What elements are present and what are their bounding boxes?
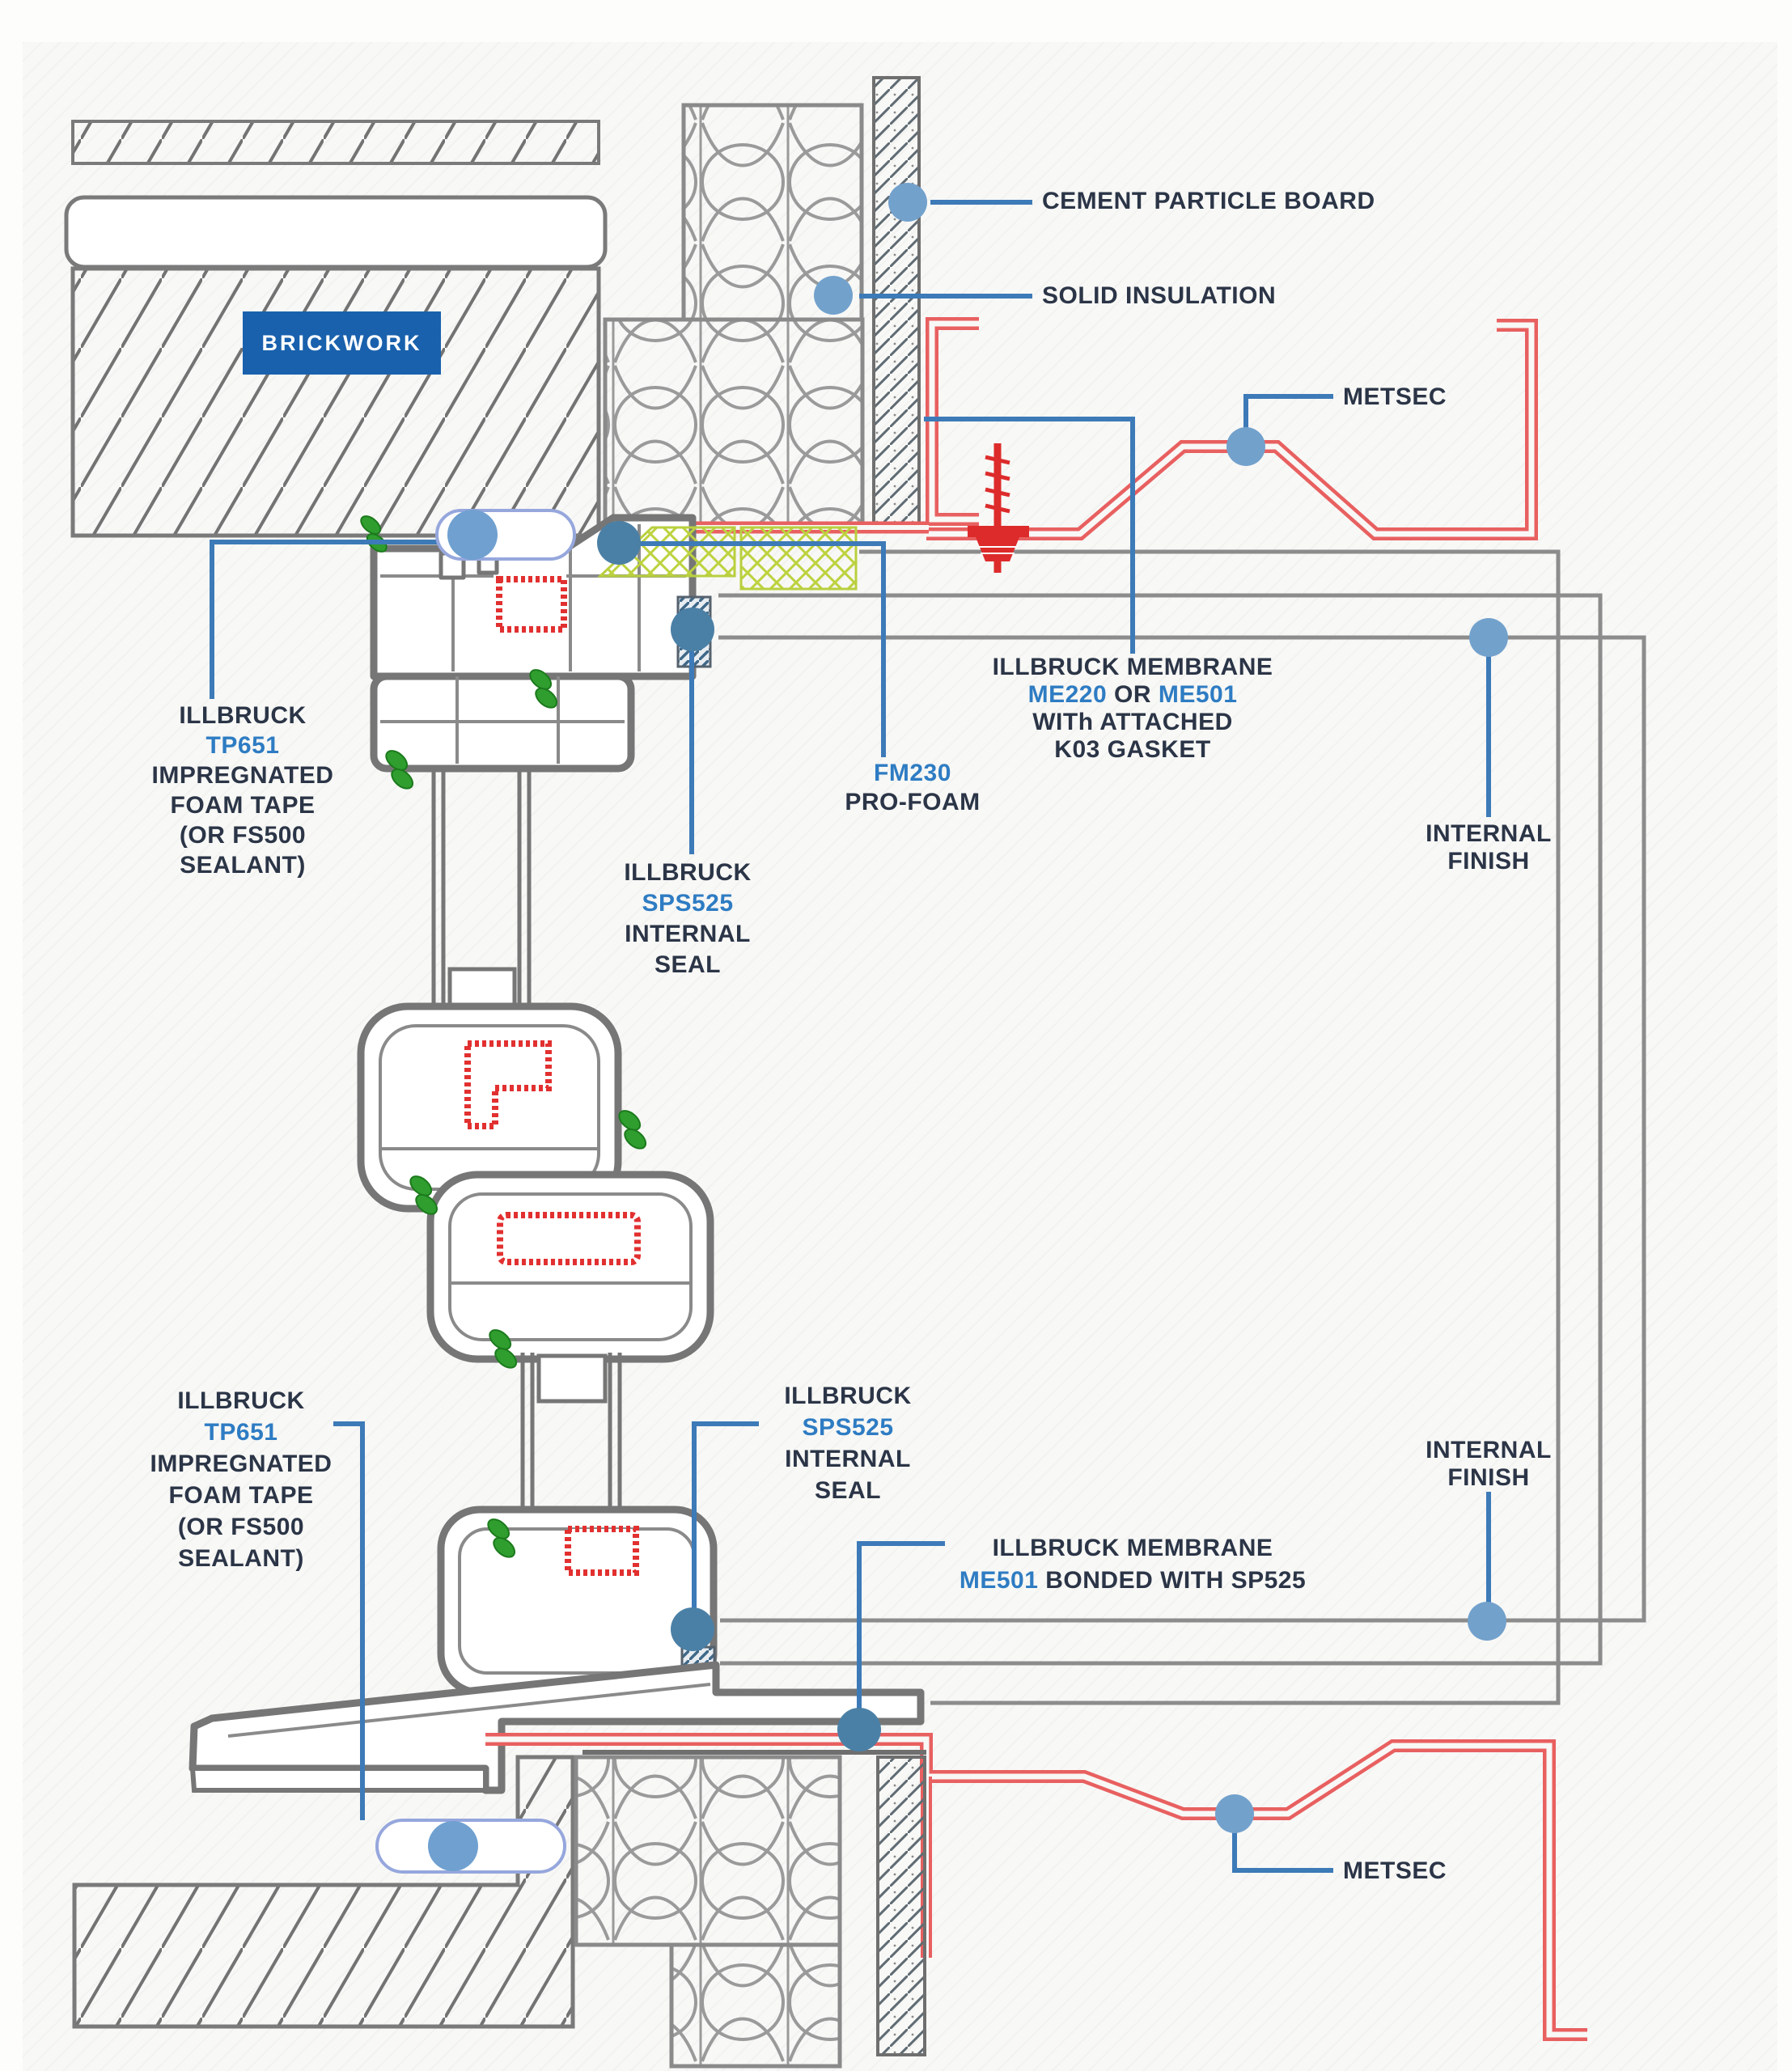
sps525-bottom-l4: SEAL xyxy=(784,1475,911,1506)
metsec-top-text: METSEC xyxy=(1343,383,1447,410)
me501-code-top: ME501 xyxy=(1159,681,1238,708)
tp651-top-l3: IMPREGNATED xyxy=(152,760,334,790)
membrane-bottom-rest: BONDED WITH SP525 xyxy=(1038,1567,1306,1594)
solid-insulation-quilt-top xyxy=(605,105,862,528)
steel-reinforcement-head xyxy=(499,579,564,629)
label-membrane-bottom: ILLBRUCK MEMBRANE ME501 BONDED WITH SP52… xyxy=(960,1532,1306,1597)
brickwork-badge: BRICKWORK xyxy=(243,311,441,375)
label-metsec-bottom: METSEC xyxy=(1343,1856,1447,1887)
cement-particle-board-text: CEMENT PARTICLE BOARD xyxy=(1042,188,1375,214)
cement-particle-board-bottom xyxy=(878,1757,925,2055)
me220-code: ME220 xyxy=(1028,681,1108,708)
tp651-top-l5: (OR FS500 xyxy=(152,820,334,850)
label-cement-particle-board: CEMENT PARTICLE BOARD xyxy=(1042,186,1375,217)
membrane-bottom-line1: ILLBRUCK MEMBRANE xyxy=(960,1532,1306,1565)
metsec-hat-profile-top xyxy=(926,325,1531,534)
detail-drawing-svg xyxy=(0,0,1792,2071)
metsec-bottom-text: METSEC xyxy=(1343,1857,1447,1884)
steel-reinforcement-transom-lower xyxy=(500,1215,638,1262)
tp651-top-l2: TP651 xyxy=(152,731,334,760)
tp651-bottom-l3: IMPREGNATED xyxy=(150,1448,333,1480)
me501-code-bottom: ME501 xyxy=(960,1567,1039,1594)
fm230-name: PRO-FOAM xyxy=(845,788,980,817)
sps525-top-l3: INTERNAL xyxy=(624,919,751,950)
label-tp651-bottom: ILLBRUCK TP651 IMPREGNATED FOAM TAPE (OR… xyxy=(150,1385,333,1574)
tp651-top-l6: SEALANT) xyxy=(152,850,334,880)
glazing-unit-1 xyxy=(434,769,529,1016)
sps525-top-l2: SPS525 xyxy=(624,888,751,919)
tp651-bottom-l4: FOAM TAPE xyxy=(150,1480,333,1511)
internal-finish-bottom-l1: INTERNAL xyxy=(1426,1437,1552,1464)
brickwork-bottom xyxy=(74,1757,573,2027)
cement-particle-board-top xyxy=(874,78,919,528)
membrane-top-line3: WITh ATTACHED xyxy=(993,709,1273,736)
label-sps525-bottom: ILLBRUCK SPS525 INTERNAL SEAL xyxy=(784,1380,911,1506)
tp651-bottom-l1: ILLBRUCK xyxy=(150,1385,333,1417)
internal-finish-bottom-l2: FINISH xyxy=(1426,1464,1552,1492)
sps525-top-l1: ILLBRUCK xyxy=(624,858,751,888)
label-solid-insulation: SOLID INSULATION xyxy=(1042,281,1276,311)
tp651-top-l1: ILLBRUCK xyxy=(152,701,334,731)
fm230-code: FM230 xyxy=(845,759,980,788)
membrane-top-line1: ILLBRUCK MEMBRANE xyxy=(993,654,1273,681)
membrane-top-line4: K03 GASKET xyxy=(993,736,1273,764)
construction-detail-drawing: BRICKWORK CEMENT PARTICLE BOARD SOLID IN… xyxy=(0,0,1792,2071)
sps525-bottom-l2: SPS525 xyxy=(784,1412,911,1443)
membrane-top-line2: ME220 OR ME501 xyxy=(993,681,1273,709)
tp651-bottom-l2: TP651 xyxy=(150,1417,333,1448)
sps525-bottom-l1: ILLBRUCK xyxy=(784,1380,911,1412)
solid-insulation-text: SOLID INSULATION xyxy=(1042,282,1276,309)
internal-finish-top-l2: FINISH xyxy=(1426,848,1552,875)
label-membrane-top: ILLBRUCK MEMBRANE ME220 OR ME501 WITh AT… xyxy=(993,654,1273,764)
label-tp651-top: ILLBRUCK TP651 IMPREGNATED FOAM TAPE (OR… xyxy=(152,701,334,880)
label-fm230: FM230 PRO-FOAM xyxy=(845,759,980,817)
tp651-bottom-l6: SEALANT) xyxy=(150,1543,333,1574)
internal-finish-top-l1: INTERNAL xyxy=(1426,820,1552,848)
brickwork-badge-label: BRICKWORK xyxy=(262,331,422,356)
sps525-top-l4: SEAL xyxy=(624,950,751,980)
sps525-bottom-l3: INTERNAL xyxy=(784,1443,911,1475)
steel-reinforcement-sash xyxy=(568,1529,636,1573)
solid-insulation-quilt-bottom xyxy=(576,1757,840,2066)
label-sps525-top: ILLBRUCK SPS525 INTERNAL SEAL xyxy=(624,858,751,980)
membrane-bottom-line2: ME501 BONDED WITH SP525 xyxy=(960,1565,1306,1597)
label-metsec-top: METSEC xyxy=(1343,382,1447,413)
tp651-bottom-l5: (OR FS500 xyxy=(150,1511,333,1543)
membrane-top-or: OR xyxy=(1107,681,1159,708)
label-internal-finish-bottom: INTERNAL FINISH xyxy=(1426,1437,1552,1492)
tp651-top-l4: FOAM TAPE xyxy=(152,790,334,820)
label-internal-finish-top: INTERNAL FINISH xyxy=(1426,820,1552,875)
